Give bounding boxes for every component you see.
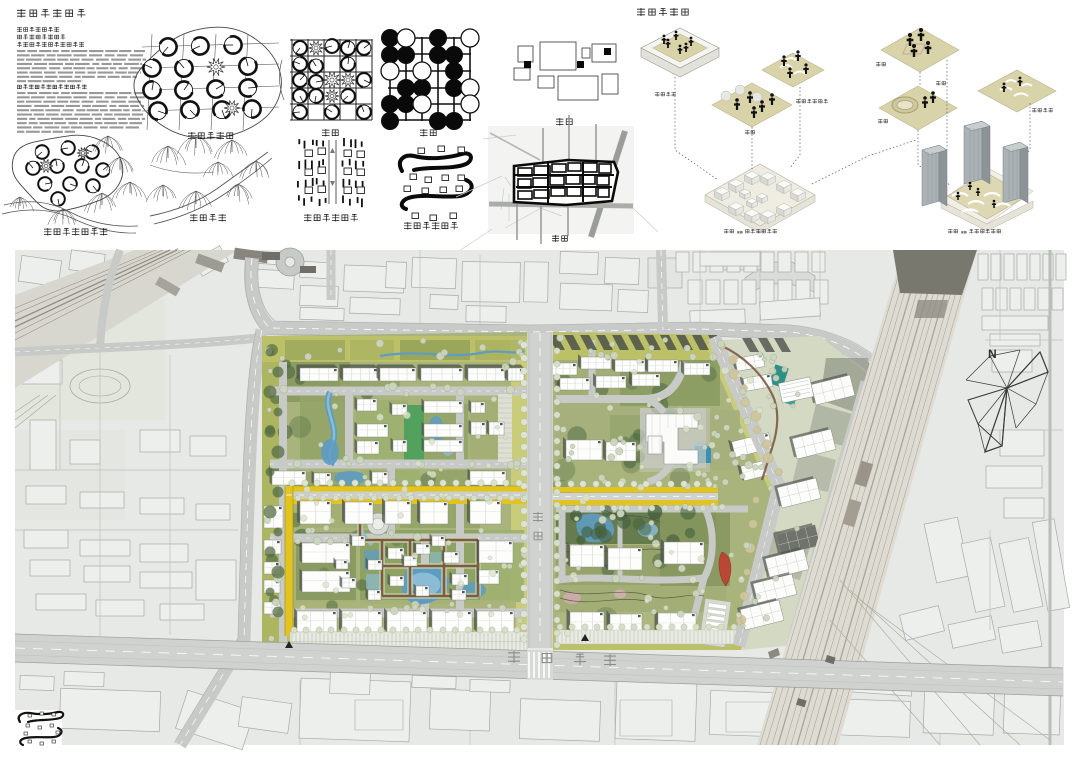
svg-text:N: N — [988, 347, 997, 361]
